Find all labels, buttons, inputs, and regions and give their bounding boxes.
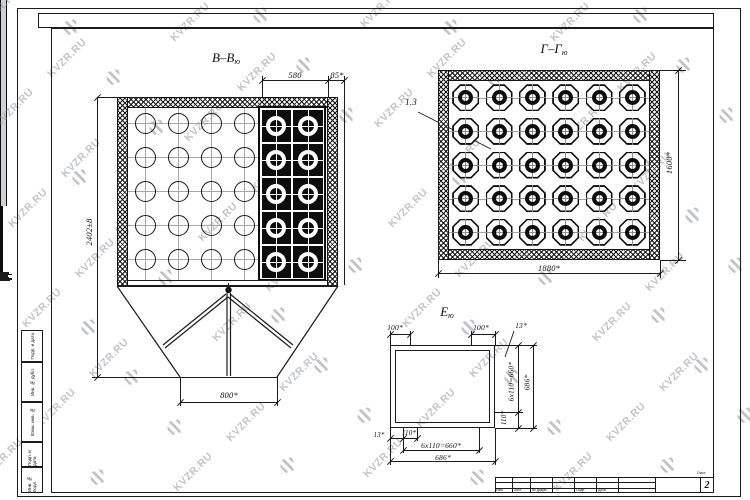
tube-element bbox=[619, 185, 646, 212]
e-plate-inner bbox=[395, 350, 490, 423]
side-stamp-cell: Взам. инв. № bbox=[21, 402, 43, 442]
line-v bbox=[438, 260, 439, 278]
tube-element bbox=[486, 219, 513, 246]
gg-right-wall bbox=[649, 70, 660, 260]
bb-dim-height: 2402±8 bbox=[84, 209, 94, 255]
top-band bbox=[38, 13, 714, 28]
element-ring bbox=[625, 158, 640, 173]
bb-tube-block bbox=[258, 106, 326, 281]
e-title-text: Е bbox=[440, 304, 448, 319]
line-h bbox=[471, 334, 495, 335]
tube-link bbox=[0, 182, 7, 189]
sheet-label: Лист bbox=[697, 470, 706, 475]
tube-element bbox=[552, 84, 579, 111]
side-stamp-label: Инв. № подл. bbox=[27, 468, 37, 492]
e-dim-13-bottom: 13* bbox=[369, 431, 389, 439]
tube-link bbox=[0, 142, 7, 149]
e-dim-side-pitch: 6x110=660* bbox=[507, 353, 516, 411]
line-h bbox=[262, 80, 344, 81]
tube-link bbox=[0, 52, 7, 59]
line-v bbox=[574, 477, 575, 493]
line-h bbox=[128, 280, 327, 281]
line-v bbox=[678, 70, 679, 260]
open-circle bbox=[201, 147, 222, 168]
tube-link bbox=[0, 196, 7, 203]
line-h bbox=[660, 260, 686, 261]
side-stamp-cell: Подп. и дата bbox=[21, 442, 43, 467]
side-stamp-label: Подп. и дата bbox=[27, 443, 37, 466]
titleblock-col-label: Дата bbox=[598, 488, 606, 492]
tube-cell bbox=[262, 178, 292, 210]
element-ring bbox=[592, 90, 607, 105]
line-v bbox=[512, 477, 513, 493]
tube-cell bbox=[293, 110, 323, 142]
tube-link bbox=[0, 86, 7, 93]
tube-link bbox=[0, 45, 7, 52]
line-v bbox=[552, 477, 553, 493]
tube-link bbox=[0, 189, 7, 196]
tube-cell bbox=[262, 110, 292, 142]
bb-title-subscript: ю bbox=[234, 57, 240, 66]
open-circle bbox=[168, 249, 189, 270]
titleblock-col-label: Подп. bbox=[576, 488, 585, 492]
gg-bottom-wall bbox=[438, 249, 660, 260]
open-circle bbox=[234, 249, 255, 270]
element-ring bbox=[592, 225, 607, 240]
line-v bbox=[530, 477, 531, 493]
line-v bbox=[660, 260, 661, 278]
tube-element bbox=[619, 219, 646, 246]
side-stamp-label: Взам. инв. № bbox=[30, 408, 35, 436]
e-title-subscript: ю bbox=[448, 311, 454, 320]
element-ring bbox=[625, 225, 640, 240]
line-h bbox=[495, 482, 655, 483]
tube-element bbox=[586, 185, 613, 212]
tube-ring bbox=[266, 218, 286, 238]
open-circle bbox=[201, 113, 222, 134]
line-v bbox=[655, 477, 656, 493]
side-stamp-cell: Подп. и дата bbox=[21, 330, 43, 362]
tube-link bbox=[0, 155, 7, 162]
tube-ring bbox=[298, 184, 318, 204]
line-h bbox=[97, 97, 117, 98]
tube-ring bbox=[266, 116, 286, 136]
line-v bbox=[518, 345, 519, 428]
line-h bbox=[390, 461, 495, 462]
tube-element bbox=[586, 84, 613, 111]
tube-element bbox=[552, 185, 579, 212]
element-ring bbox=[492, 158, 507, 173]
bb-dim-580: 580 bbox=[272, 70, 318, 80]
drawing-sheet: KVZR.RUKVZR.RUKVZR.RUKVZR.RUKVZR.RUKVZR.… bbox=[0, 0, 750, 500]
element-ring bbox=[592, 158, 607, 173]
side-stamp-label: Подп. и дата bbox=[30, 333, 35, 360]
open-circle bbox=[201, 215, 222, 236]
gg-dim-width: 1880* bbox=[526, 263, 572, 273]
open-circle bbox=[234, 113, 255, 134]
tube-element bbox=[486, 152, 513, 179]
element-ring bbox=[558, 158, 573, 173]
line-v bbox=[97, 97, 98, 377]
element-ring bbox=[458, 158, 473, 173]
element-ring bbox=[592, 124, 607, 139]
bb-dim-85: 85* bbox=[322, 70, 352, 80]
open-circle bbox=[168, 113, 189, 134]
line-v bbox=[596, 477, 597, 493]
tube-ring bbox=[298, 252, 318, 272]
gg-callout-1-3: 1.3 bbox=[398, 97, 424, 107]
tube-ring bbox=[298, 116, 318, 136]
tube-element bbox=[452, 152, 479, 179]
tube-element bbox=[619, 152, 646, 179]
line-v bbox=[533, 345, 534, 428]
open-circle bbox=[135, 113, 156, 134]
tube-element bbox=[586, 219, 613, 246]
tube-link bbox=[0, 176, 7, 183]
tube-ring bbox=[298, 218, 318, 238]
element-ring bbox=[492, 124, 507, 139]
tube-cell bbox=[293, 144, 323, 176]
open-circle bbox=[168, 147, 189, 168]
tube-ring bbox=[298, 150, 318, 170]
element-ring bbox=[492, 90, 507, 105]
tube-link bbox=[0, 73, 7, 80]
line-v bbox=[344, 76, 345, 285]
tube-ring bbox=[266, 184, 286, 204]
tube-element bbox=[519, 118, 546, 145]
open-circle bbox=[201, 181, 222, 202]
bb-view-title: В–Вю bbox=[196, 50, 256, 66]
element-ring bbox=[625, 191, 640, 206]
tube-element bbox=[586, 152, 613, 179]
element-ring bbox=[492, 191, 507, 206]
e-dim-100-left: 100* bbox=[380, 323, 410, 332]
open-circle bbox=[135, 249, 156, 270]
open-circle bbox=[201, 249, 222, 270]
tube-element bbox=[519, 84, 546, 111]
line-v bbox=[228, 283, 229, 292]
line-h bbox=[438, 273, 660, 274]
bb-title-text: В–В bbox=[212, 50, 234, 65]
element-ring bbox=[625, 124, 640, 139]
element-ring bbox=[525, 124, 540, 139]
side-stamp-cell: Инв. № дубл. bbox=[21, 362, 43, 402]
tube-cell bbox=[262, 144, 292, 176]
tube-link bbox=[0, 79, 7, 86]
tube-element bbox=[486, 185, 513, 212]
gg-dim-height: 1600* bbox=[664, 142, 674, 184]
tube-cell bbox=[293, 246, 323, 278]
e-dim-side-total: 686* bbox=[523, 367, 532, 399]
tube-element bbox=[619, 118, 646, 145]
titleblock-col-label: Изм. bbox=[496, 488, 504, 492]
open-circle bbox=[135, 181, 156, 202]
titleblock-col-label: № докум. bbox=[532, 488, 547, 492]
open-circle bbox=[168, 181, 189, 202]
tube-link bbox=[0, 58, 7, 65]
bb-dim-outlet: 800* bbox=[206, 390, 252, 400]
open-circle bbox=[234, 147, 255, 168]
tube-element bbox=[519, 185, 546, 212]
gg-title-text: Г–Г bbox=[541, 41, 562, 56]
open-circle bbox=[234, 181, 255, 202]
open-circle bbox=[234, 215, 255, 236]
tube-element bbox=[486, 118, 513, 145]
element-ring bbox=[525, 225, 540, 240]
open-circle bbox=[168, 215, 189, 236]
element-ring bbox=[492, 225, 507, 240]
tube-cell bbox=[262, 246, 292, 278]
line-h bbox=[403, 450, 479, 451]
tube-element bbox=[552, 152, 579, 179]
tube-element bbox=[452, 118, 479, 145]
tube-element bbox=[452, 185, 479, 212]
e-view-title: Ею bbox=[424, 304, 470, 320]
tube-ring bbox=[266, 150, 286, 170]
element-ring bbox=[458, 225, 473, 240]
tube-element bbox=[552, 118, 579, 145]
side-stamp-cell: Инв. № подл. bbox=[21, 467, 43, 493]
line-h bbox=[390, 334, 410, 335]
tube-cell bbox=[262, 212, 292, 244]
line-h bbox=[92, 377, 278, 378]
line-h bbox=[180, 402, 277, 403]
tube-element bbox=[619, 84, 646, 111]
element-ring bbox=[525, 158, 540, 173]
element-ring bbox=[558, 225, 573, 240]
element-ring bbox=[592, 191, 607, 206]
tube-element bbox=[586, 118, 613, 145]
line-h bbox=[660, 70, 686, 71]
tube-cell bbox=[293, 178, 323, 210]
tube-link bbox=[0, 17, 7, 24]
element-ring bbox=[525, 191, 540, 206]
tube-element bbox=[519, 152, 546, 179]
tube-element bbox=[452, 84, 479, 111]
open-circle bbox=[135, 147, 156, 168]
gg-title-subscript: ю bbox=[562, 48, 568, 57]
bb-right-wall bbox=[327, 97, 338, 286]
tube-link bbox=[0, 38, 7, 45]
tube-link bbox=[0, 161, 7, 168]
e-dim-bottom-pitch: 6x110=660* bbox=[412, 441, 470, 450]
tube-element bbox=[486, 84, 513, 111]
open-circle bbox=[135, 215, 156, 236]
tube-element bbox=[552, 219, 579, 246]
sheet-number: 2 bbox=[700, 477, 714, 493]
tube-element bbox=[519, 219, 546, 246]
tube-ring bbox=[266, 252, 286, 272]
tube-link bbox=[0, 24, 7, 31]
bb-left-wall bbox=[117, 97, 128, 286]
tube-link bbox=[0, 93, 7, 100]
gg-left-wall bbox=[438, 70, 449, 260]
tube-link bbox=[0, 148, 7, 155]
tube-cell bbox=[293, 212, 323, 244]
gg-top-wall bbox=[438, 70, 660, 81]
gg-view-title: Г–Гю bbox=[524, 41, 584, 57]
element-ring bbox=[558, 124, 573, 139]
side-stamp-label: Инв. № дубл. bbox=[30, 368, 35, 396]
tube-element bbox=[452, 219, 479, 246]
element-ring bbox=[458, 124, 473, 139]
line-v bbox=[618, 477, 619, 493]
e-dim-13-top: 13* bbox=[510, 321, 532, 330]
titleblock-col-label: Лист bbox=[514, 488, 522, 492]
signature-smudge bbox=[0, 280, 10, 282]
